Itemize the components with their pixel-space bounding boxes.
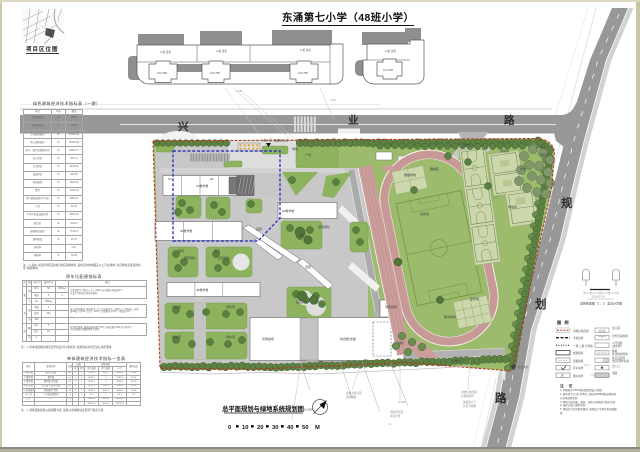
svg-text:道路断面图（1：1）竖向示意图: 道路断面图（1：1）竖向示意图: [580, 301, 622, 306]
svg-text:庭院绿化: 庭院绿化: [318, 224, 330, 229]
svg-text:2#教学楼: 2#教学楼: [282, 208, 294, 213]
svg-text:4#教学楼: 4#教学楼: [196, 287, 208, 292]
svg-text:20: 20: [257, 425, 263, 431]
svg-text:庭院: 庭院: [300, 232, 306, 237]
svg-text:器械场地: 器械场地: [404, 172, 416, 177]
svg-text:xx栋 住宅: xx栋 住宅: [160, 50, 172, 54]
svg-text:绿化带: 绿化带: [226, 304, 235, 309]
svg-text:2.180: 2.180: [330, 99, 337, 102]
svg-text:1#: 1#: [168, 177, 172, 181]
svg-text:主入口: 主入口: [263, 137, 272, 142]
svg-text:运动场: 运动场: [420, 211, 429, 216]
svg-text:庭院绿化: 庭院绿化: [296, 299, 308, 304]
svg-text:风雨操场: 风雨操场: [262, 336, 274, 341]
svg-text:次入口: 次入口: [536, 144, 545, 149]
svg-text:10: 10: [242, 425, 248, 431]
svg-text:排球场: 排球场: [508, 204, 517, 209]
svg-text:2.180: 2.180: [236, 90, 243, 93]
svg-text:23-F/T5B: 23-F/T5B: [157, 72, 167, 75]
svg-text:兴: 兴: [178, 120, 189, 133]
svg-text:庭院: 庭院: [178, 248, 184, 253]
svg-text:社会车流: 社会车流: [518, 365, 529, 369]
svg-text:详规划条件: 详规划条件: [461, 394, 474, 398]
svg-text:±0.000: ±0.000: [398, 400, 406, 404]
svg-text:图 例: 图 例: [557, 319, 570, 326]
svg-text:停车位: 停车位: [452, 358, 461, 363]
svg-text:校园主入口: 校园主入口: [274, 139, 288, 143]
svg-text:篮球场: 篮球场: [462, 142, 471, 147]
svg-text:xxx: xxx: [388, 423, 392, 426]
svg-text:详见大样图: 详见大样图: [463, 404, 476, 408]
svg-text:3.0 6.0 3.0: 3.0 6.0 3.0: [592, 295, 605, 299]
svg-text:乔木: 乔木: [520, 166, 526, 171]
svg-text:xx栋 住宅: xx栋 住宅: [385, 49, 397, 53]
svg-text:7.0: 7.0: [590, 373, 594, 377]
svg-text:xx栋 住宅: xx栋 住宅: [216, 49, 228, 53]
svg-text:24.0: 24.0: [584, 363, 590, 367]
svg-text:40: 40: [287, 425, 293, 431]
svg-text:23-F/T5B: 23-F/T5B: [210, 72, 220, 75]
svg-text:庭院绿化: 庭院绿化: [218, 255, 230, 260]
svg-text:2#: 2#: [210, 177, 214, 181]
svg-text:绿化带: 绿化带: [172, 304, 181, 309]
svg-text:风雨操场: 风雨操场: [385, 304, 397, 309]
svg-text:xx栋 住宅: xx栋 住宅: [300, 48, 312, 52]
svg-text:路: 路: [504, 114, 515, 127]
svg-text:总平面规划与绿地系统规划图: 总平面规划与绿地系统规划图: [222, 404, 304, 413]
svg-text:通用图集: 通用图集: [346, 395, 357, 399]
svg-text:庭院: 庭院: [214, 248, 220, 253]
svg-text:详见大样: 详见大样: [390, 414, 401, 418]
svg-text:围墙及大门: 围墙及大门: [463, 400, 476, 404]
svg-text:绿化带: 绿化带: [226, 334, 235, 339]
svg-text:业: 业: [348, 114, 359, 127]
svg-text:规: 规: [561, 196, 573, 210]
svg-text:围墙大样详见: 围墙大样详见: [346, 391, 362, 395]
svg-text:(1:500): (1:500): [304, 408, 313, 412]
svg-text:消防登高面: 消防登高面: [390, 410, 403, 414]
svg-text:0: 0: [228, 425, 231, 431]
svg-text:23-F/T5B: 23-F/T5B: [383, 69, 393, 72]
svg-text:绿化: 绿化: [292, 146, 298, 151]
svg-text:3#教学楼: 3#教学楼: [180, 228, 192, 233]
svg-text:绿化: 绿化: [398, 340, 404, 345]
svg-text:跳远场地: 跳远场地: [444, 314, 456, 319]
svg-text:用地红线范围: 用地红线范围: [461, 390, 477, 394]
svg-text:连廊: 连廊: [305, 264, 311, 269]
svg-text:庭院绿化: 庭院绿化: [184, 255, 196, 260]
svg-text:23-F/T5B: 23-F/T5B: [298, 72, 308, 75]
svg-text:绿化带: 绿化带: [172, 334, 181, 339]
svg-text:广场: 广场: [305, 152, 311, 157]
svg-text:1#教学楼: 1#教学楼: [196, 183, 208, 188]
svg-text:划: 划: [535, 297, 547, 311]
svg-text:连廊: 连廊: [256, 226, 262, 231]
svg-text:综合楼/食堂: 综合楼/食堂: [340, 336, 356, 341]
svg-text:50: 50: [302, 425, 308, 431]
svg-text:M: M: [315, 425, 320, 431]
svg-text:器械区: 器械区: [430, 166, 439, 171]
svg-text:路: 路: [495, 391, 507, 405]
svg-text:30: 30: [272, 425, 278, 431]
svg-text:篮球场: 篮球场: [470, 296, 479, 301]
svg-text:排球场: 排球场: [500, 148, 509, 153]
svg-text:绿化带: 绿化带: [540, 152, 549, 157]
